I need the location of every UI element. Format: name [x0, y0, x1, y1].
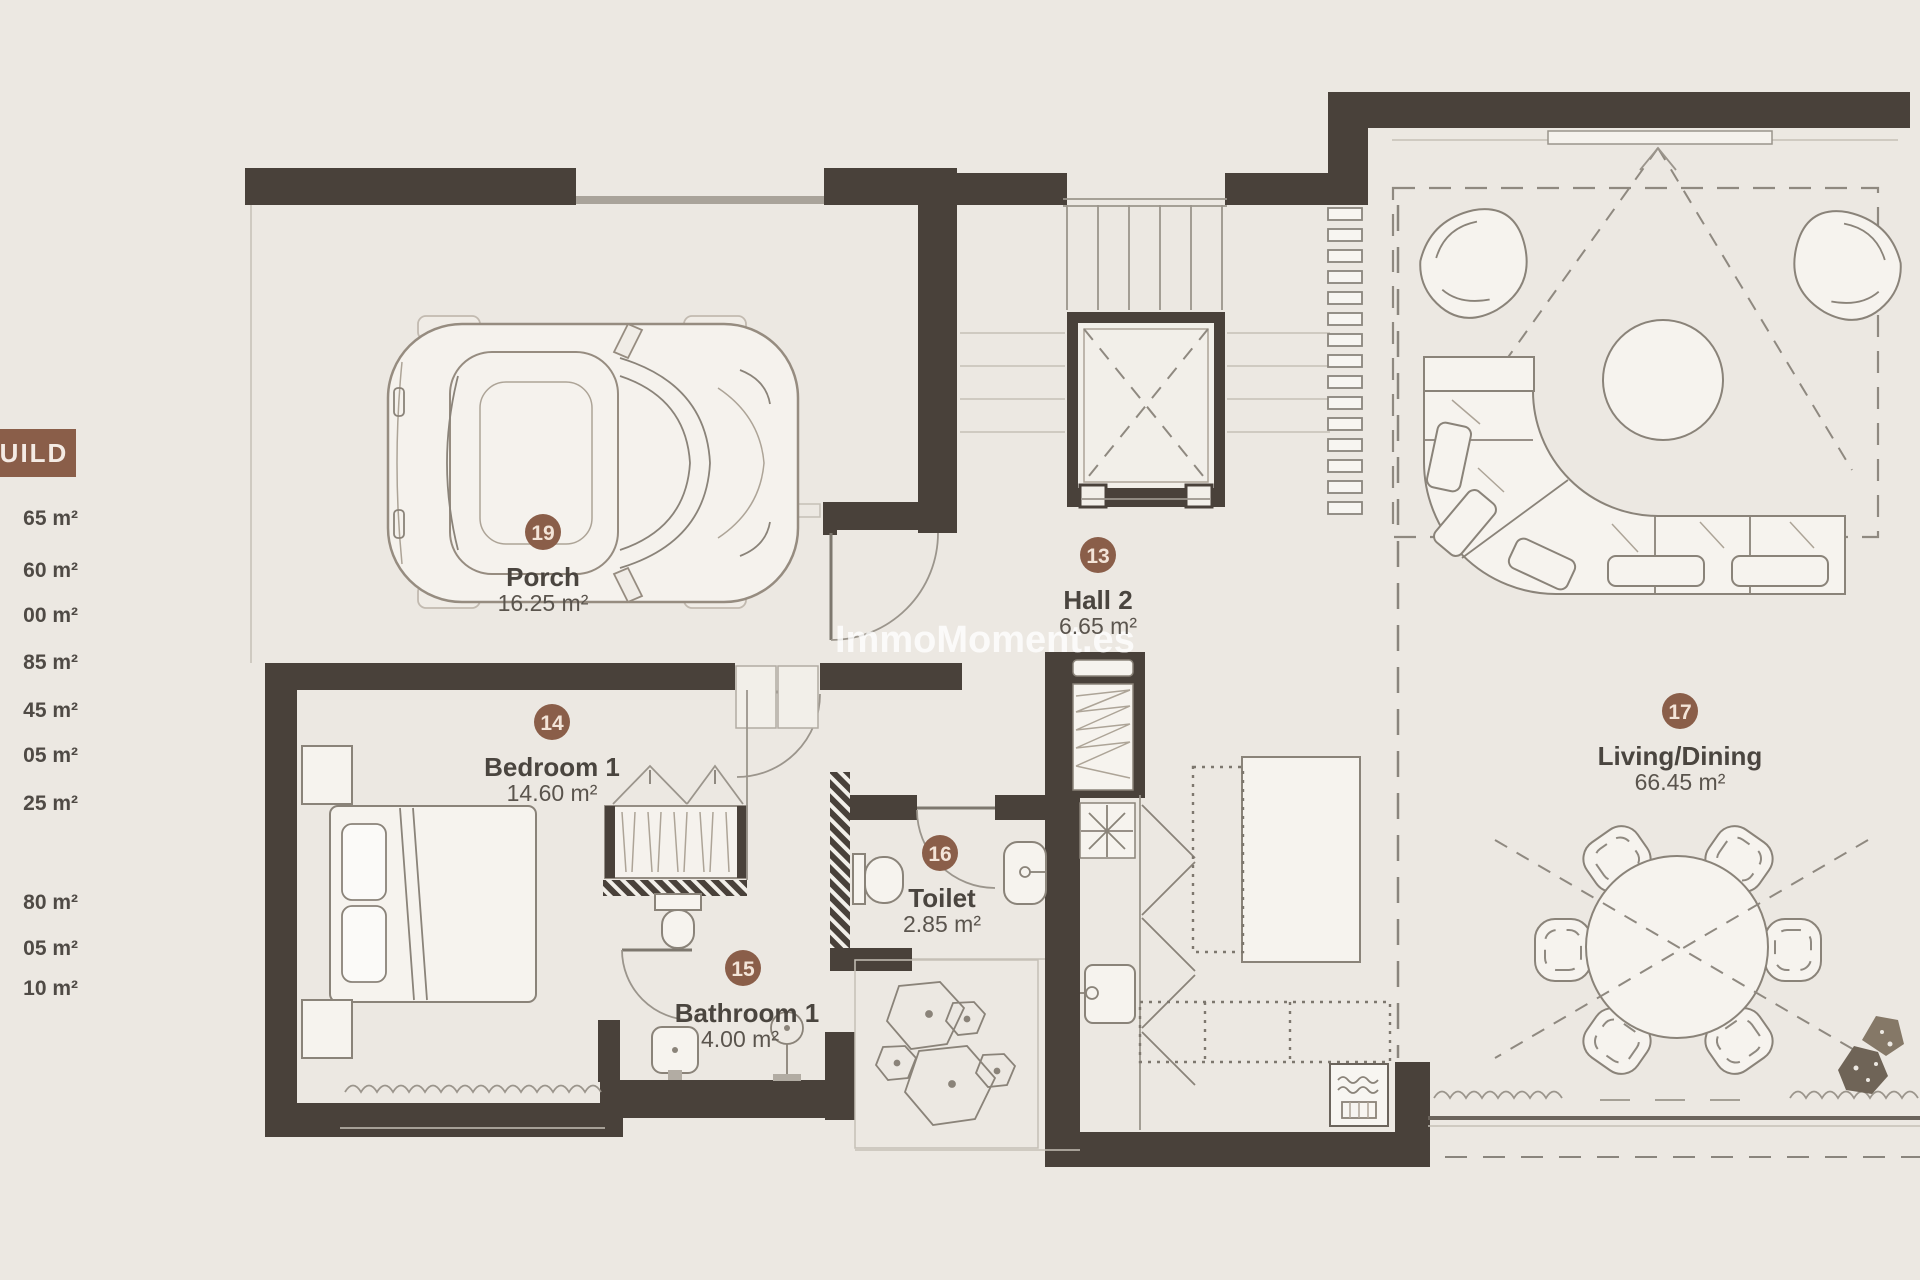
nightstand-bottom	[302, 1000, 352, 1058]
bed-pillow-bottom	[342, 906, 386, 982]
bathroom-sink-trap	[668, 1070, 682, 1080]
room-area: 4.00 m²	[701, 1026, 779, 1052]
closet-interior	[1073, 684, 1133, 790]
wardrobe-edge-right	[737, 806, 747, 878]
hedge-wave-left	[1434, 1092, 1562, 1099]
room-area: 6.65 m²	[1059, 613, 1137, 639]
sofa-back-cushion	[1732, 556, 1828, 586]
closet-slot	[1073, 660, 1133, 676]
wall-toilet-top-a	[850, 795, 917, 820]
room-label-livingdining: 17 Living/Dining 66.45 m²	[1598, 693, 1763, 795]
room-label-bedroom1: 14 Bedroom 1 14.60 m²	[484, 704, 620, 806]
step-box	[778, 666, 818, 728]
room-number: 13	[1086, 545, 1109, 568]
room-number: 19	[531, 522, 554, 545]
kitchen-cabinet-doors	[1142, 805, 1195, 1085]
stair-treads	[1067, 205, 1222, 310]
wc-bowl	[662, 910, 694, 948]
wall-entry-stub	[823, 502, 837, 535]
legend-item: 05 m²	[23, 744, 78, 767]
counter-dividers	[1205, 1002, 1290, 1062]
floorplan-canvas: UILD 65 m² 60 m² 00 m² 85 m² 45 m² 05 m²…	[0, 0, 1920, 1280]
toilet-wc-bowl	[865, 857, 903, 903]
room-name: Living/Dining	[1598, 741, 1763, 771]
armchair-left	[1407, 198, 1542, 330]
room-number: 16	[928, 843, 951, 866]
room-area: 2.85 m²	[903, 911, 981, 937]
wc-tank	[655, 894, 701, 910]
wardrobe	[603, 690, 747, 896]
wardrobe-door-swings	[613, 766, 743, 804]
hall-closet	[1045, 652, 1145, 798]
overhead-cabinet-dotted	[1193, 767, 1243, 952]
wall-garage-top-left	[245, 168, 576, 205]
kitchen-sink	[1085, 965, 1135, 1023]
wall-garage-top-right	[824, 168, 918, 205]
window-center-mark	[1640, 148, 1676, 170]
stair-landing-edge	[1063, 199, 1227, 206]
floorplan-page: UILD 65 m² 60 m² 00 m² 85 m² 45 m² 05 m²…	[0, 0, 1920, 1280]
wall-hall-left-vertical	[918, 168, 957, 533]
wall-bathroom-bottom	[600, 1080, 855, 1118]
step-box	[736, 666, 776, 728]
wall-kitchen-bottom	[1080, 1132, 1430, 1167]
toilet-basin	[1004, 842, 1046, 904]
wall-bedroom-top-right	[820, 663, 962, 690]
wall-entry	[823, 502, 923, 530]
wall-living-top	[1368, 92, 1910, 128]
kitchen-island	[1242, 757, 1360, 962]
kitchen	[1080, 757, 1390, 1130]
wall-stairs-top-left	[957, 173, 1067, 205]
room-label-toilet: 16 Toilet 2.85 m²	[903, 835, 981, 937]
wall-toilet-left-glazed	[830, 772, 850, 958]
hedge-wave-right	[1790, 1092, 1918, 1099]
legend-item: 45 m²	[23, 699, 78, 722]
elevator-door-jamb-right	[1186, 485, 1212, 507]
legend-item: 80 m²	[23, 891, 78, 914]
coffee-table	[1603, 320, 1723, 440]
wall-bathroom-left-stub	[598, 1020, 620, 1082]
sofa-top-arm	[1424, 357, 1534, 391]
counter-dotted	[1140, 1002, 1390, 1062]
room-name: Toilet	[908, 883, 976, 913]
legend-panel: UILD 65 m² 60 m² 00 m² 85 m² 45 m² 05 m²…	[0, 429, 78, 1000]
elevator-cab	[1078, 323, 1214, 488]
armchair-right	[1779, 200, 1914, 332]
shower-base	[773, 1074, 801, 1081]
nightstand-top	[302, 746, 352, 804]
legend-item: 60 m²	[23, 559, 78, 582]
legend-item: 10 m²	[23, 977, 78, 1000]
bedroom-window-wave	[345, 1086, 601, 1093]
wall-bathroom-right	[825, 1032, 855, 1120]
room-name: Hall 2	[1063, 585, 1132, 615]
car	[388, 316, 798, 608]
garden-rocks	[1838, 1016, 1904, 1094]
louver-screen	[1328, 208, 1362, 514]
legend-item: 65 m²	[23, 507, 78, 530]
room-area: 14.60 m²	[507, 780, 598, 806]
wall-bedroom-bottom	[265, 1103, 623, 1137]
bed-pillow-top	[342, 824, 386, 900]
courtyard	[855, 959, 1045, 1148]
legend-header: UILD	[0, 438, 68, 468]
bedroom-door-steps	[736, 666, 818, 728]
room-label-hall2: 13 Hall 2 6.65 m²	[1059, 537, 1137, 639]
toilet-wc-tank	[853, 854, 865, 904]
room-name: Porch	[506, 562, 580, 592]
room-area: 66.45 m²	[1635, 769, 1726, 795]
window-sill	[1548, 131, 1772, 144]
elevator	[1067, 312, 1225, 507]
wall-stairs-top-right	[1225, 173, 1368, 205]
room-name: Bedroom 1	[484, 752, 620, 782]
room-number: 15	[731, 958, 755, 981]
room-number: 14	[540, 712, 564, 735]
legend-item: 00 m²	[23, 604, 78, 627]
sofa-back-cushion	[1608, 556, 1704, 586]
courtyard-plants	[876, 982, 1015, 1125]
elevator-door-jamb-left	[1080, 485, 1106, 507]
room-name: Bathroom 1	[675, 998, 819, 1028]
wall-step-vertical	[1328, 92, 1368, 177]
wardrobe-edge-left	[605, 806, 615, 878]
legend-item: 05 m²	[23, 937, 78, 960]
living-window	[1392, 131, 1898, 144]
window-garage-top	[576, 196, 824, 204]
wall-kitchen-right-stub	[1395, 1062, 1430, 1167]
bathroom-sink-drain	[672, 1047, 678, 1053]
room-area: 16.25 m²	[498, 590, 589, 616]
legend-item: 85 m²	[23, 651, 78, 674]
wall-bedroom-left	[265, 663, 297, 1137]
legend-item: 25 m²	[23, 792, 78, 815]
wall-toilet-top-b	[995, 795, 1045, 820]
bathroom-fixtures	[652, 894, 803, 1081]
wall-bedroom-top	[265, 663, 735, 690]
room-number: 17	[1668, 701, 1691, 724]
dining-set	[1495, 818, 1868, 1081]
